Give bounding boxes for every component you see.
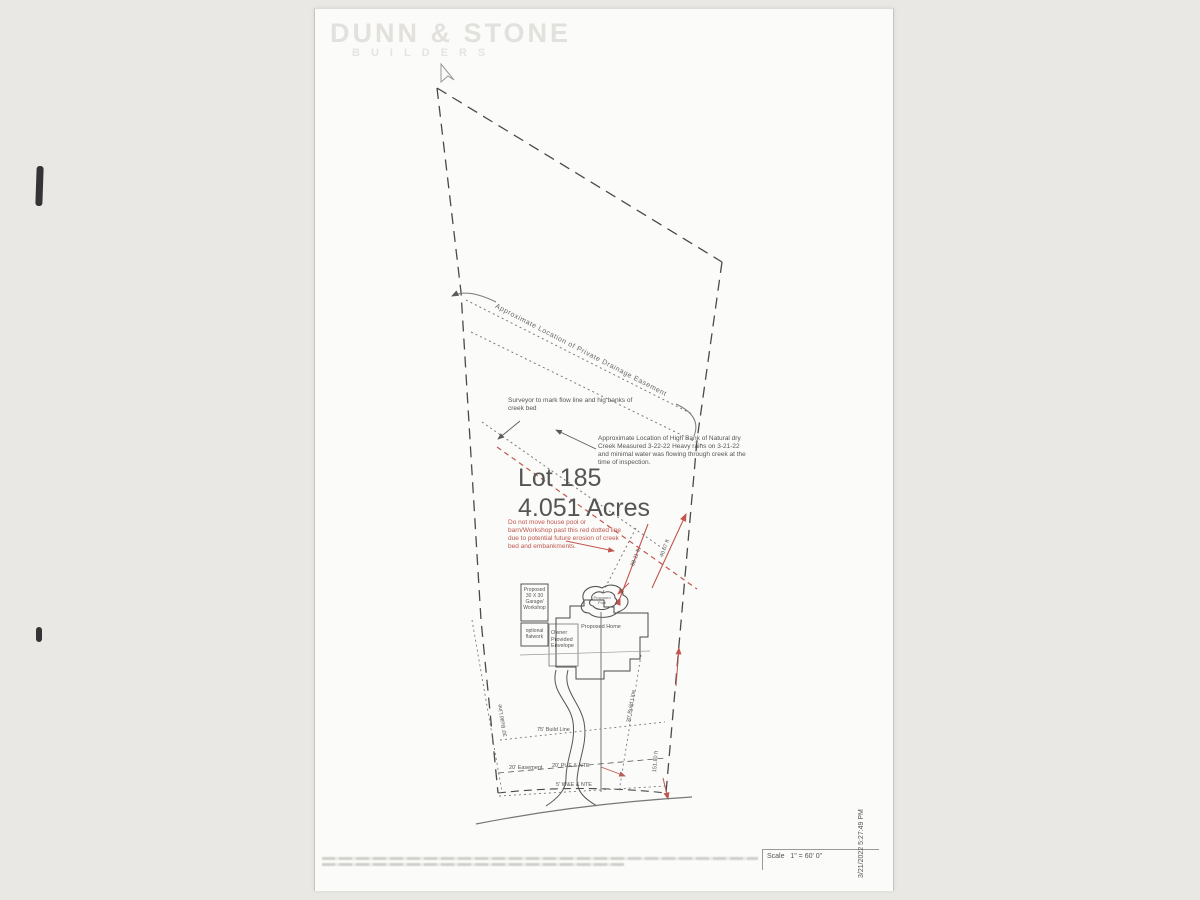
flatwork-label: optional flatwork xyxy=(521,628,548,640)
build-line-75-label: 75' Build Line xyxy=(537,727,570,734)
road-edge-arc xyxy=(476,797,692,824)
drainage-easement-dotted-lines xyxy=(466,300,704,446)
lot-title: Lot 185 4.051 Acres xyxy=(518,464,650,523)
scale-value: 1" = 60' 0" xyxy=(790,853,822,860)
garage-label: Proposed 30 X 30 Garage/ Workshop xyxy=(521,587,548,611)
scanned-site-plan-page: DUNN & STONE BUILDERS xyxy=(0,0,1200,900)
fine-print-line-2 xyxy=(322,863,624,866)
plot-timestamp: 3/21/2022 5:27:49 PM xyxy=(858,809,865,878)
home-label: Proposed Home xyxy=(580,624,622,631)
pue-label: 20' PUE & NTE xyxy=(552,763,590,770)
high-bank-leader-arrow xyxy=(556,430,596,449)
fine-print-line-1 xyxy=(322,857,758,860)
surveyor-note: Surveyor to mark flow line and hig banks… xyxy=(508,397,640,413)
surveyor-leader-arrow xyxy=(498,421,520,439)
easement-20-label: 20' Easement xyxy=(509,765,542,772)
high-bank-note: Approximate Location of High Bank of Nat… xyxy=(598,435,750,468)
drainage-easement-arrow-curve xyxy=(452,293,496,302)
scale-label: Scale xyxy=(767,853,785,860)
east-boundary-red-arrow-up xyxy=(676,648,679,686)
erosion-warning-note: Do not move house pool or barn/Workshop … xyxy=(508,519,626,552)
lot-name: Lot 185 xyxy=(518,464,650,494)
pointer-artifact xyxy=(441,64,454,82)
property-boundary-bottom xyxy=(498,789,666,794)
owner-envelope-label: Owner Provided Envelope xyxy=(551,630,578,650)
envelope-cross-line xyxy=(520,651,650,655)
we-label: 5' W&E & NTE xyxy=(556,782,592,789)
pool-label: Proposed Pool xyxy=(590,595,614,605)
creek-offset-red-arrows xyxy=(620,514,686,598)
